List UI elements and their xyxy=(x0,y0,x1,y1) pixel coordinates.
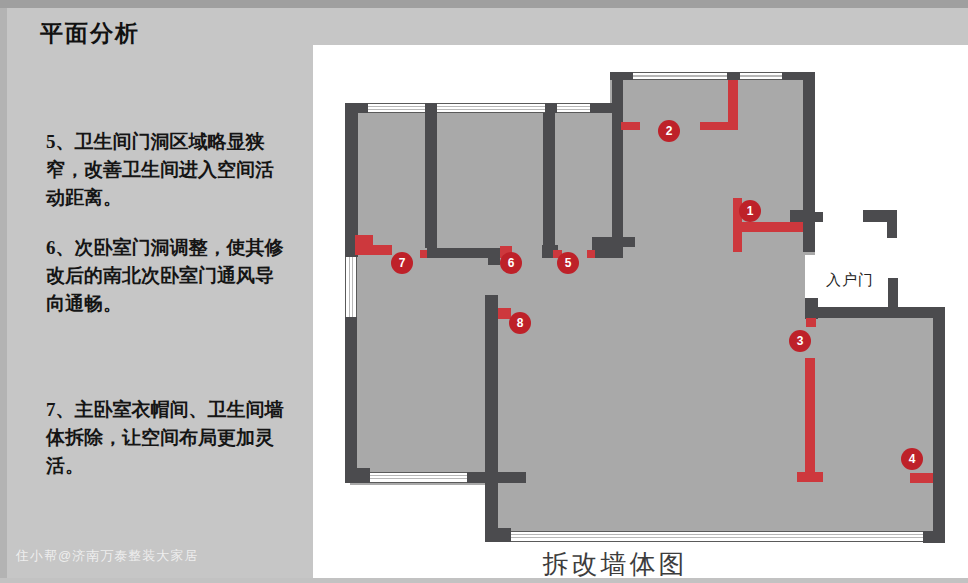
window xyxy=(633,72,727,80)
wall-segment xyxy=(592,237,623,258)
demolition-wall-segment xyxy=(587,250,595,258)
wall-segment xyxy=(485,295,498,535)
demolition-wall-segment xyxy=(373,245,392,255)
floor-area xyxy=(485,480,815,538)
marker-3: 3 xyxy=(789,330,811,352)
demolition-wall-segment xyxy=(621,122,640,130)
floor-area xyxy=(803,318,938,540)
wall-segment xyxy=(590,103,613,113)
wall-segment xyxy=(888,278,898,308)
window xyxy=(511,531,923,542)
demolition-wall-segment xyxy=(806,318,816,327)
wall-segment xyxy=(485,528,511,542)
floor-plan: 12345678 xyxy=(0,0,968,583)
floor-area xyxy=(350,103,615,253)
demolition-wall-segment xyxy=(355,235,373,255)
demolition-wall-segment xyxy=(797,472,823,482)
bottom-edge-strip xyxy=(0,578,968,583)
marker-2: 2 xyxy=(658,120,680,142)
marker-7: 7 xyxy=(391,252,413,274)
wall-segment xyxy=(488,256,500,265)
demolition-wall-segment xyxy=(700,122,738,130)
wall-segment xyxy=(345,468,370,483)
wall-segment xyxy=(498,472,526,483)
watermark: 住小帮@济南万泰整装大家居 xyxy=(16,547,198,565)
wall-segment xyxy=(923,531,945,543)
wall-segment xyxy=(543,113,555,245)
marker-4: 4 xyxy=(901,448,923,470)
window xyxy=(437,103,545,113)
wall-segment xyxy=(610,72,633,80)
wall-segment xyxy=(425,113,437,248)
demolition-wall-segment xyxy=(420,250,427,258)
window xyxy=(368,103,425,113)
wall-segment xyxy=(467,472,485,483)
window xyxy=(740,72,782,80)
wall-segment xyxy=(790,210,803,222)
demolition-wall-segment xyxy=(733,222,803,232)
wall-segment xyxy=(803,72,815,252)
marker-5: 5 xyxy=(557,252,579,274)
floor-area xyxy=(350,250,805,485)
wall-segment xyxy=(345,103,368,113)
window xyxy=(370,472,467,483)
marker-8: 8 xyxy=(509,312,531,334)
wall-segment xyxy=(805,307,943,318)
wall-segment xyxy=(863,210,897,222)
wall-segment xyxy=(623,237,635,247)
wall-segment xyxy=(345,317,357,468)
demolition-wall-segment xyxy=(910,473,933,483)
wall-segment xyxy=(933,307,945,543)
marker-1: 1 xyxy=(739,200,761,222)
diagram-caption: 拆改墙体图 xyxy=(500,547,730,582)
marker-6: 6 xyxy=(500,252,522,274)
wall-segment xyxy=(612,80,623,237)
window xyxy=(345,257,357,317)
wall-segment xyxy=(887,222,897,238)
entrance-door-label: 入户门 xyxy=(818,271,882,290)
window xyxy=(557,103,590,113)
demolition-wall-segment xyxy=(805,358,815,472)
wall-segment xyxy=(815,212,823,222)
slide: 平面分析 5、卫生间门洞区域略显狭 窄，改善卫生间进入空间活 动距离。 6、次卧… xyxy=(0,0,968,583)
wall-segment xyxy=(727,72,740,80)
wall-segment xyxy=(425,103,437,113)
wall-segment xyxy=(545,103,557,113)
